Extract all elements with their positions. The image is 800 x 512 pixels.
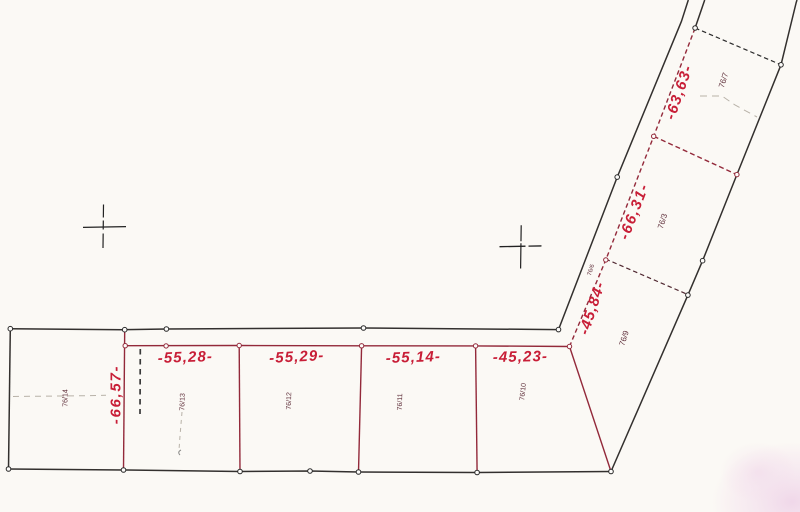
svg-text:76/12: 76/12 xyxy=(286,392,294,410)
svg-text:-55,28-: -55,28- xyxy=(157,348,213,367)
svg-text:76/13: 76/13 xyxy=(179,393,187,411)
svg-text:-45,23-: -45,23- xyxy=(493,348,549,366)
svg-text:-55,14-: -55,14- xyxy=(385,348,441,367)
svg-text:-55,29-: -55,29- xyxy=(269,347,325,367)
svg-text:76/14: 76/14 xyxy=(63,389,70,407)
svg-text:76/11: 76/11 xyxy=(397,393,405,410)
svg-text:-66,57-: -66,57- xyxy=(108,365,125,424)
